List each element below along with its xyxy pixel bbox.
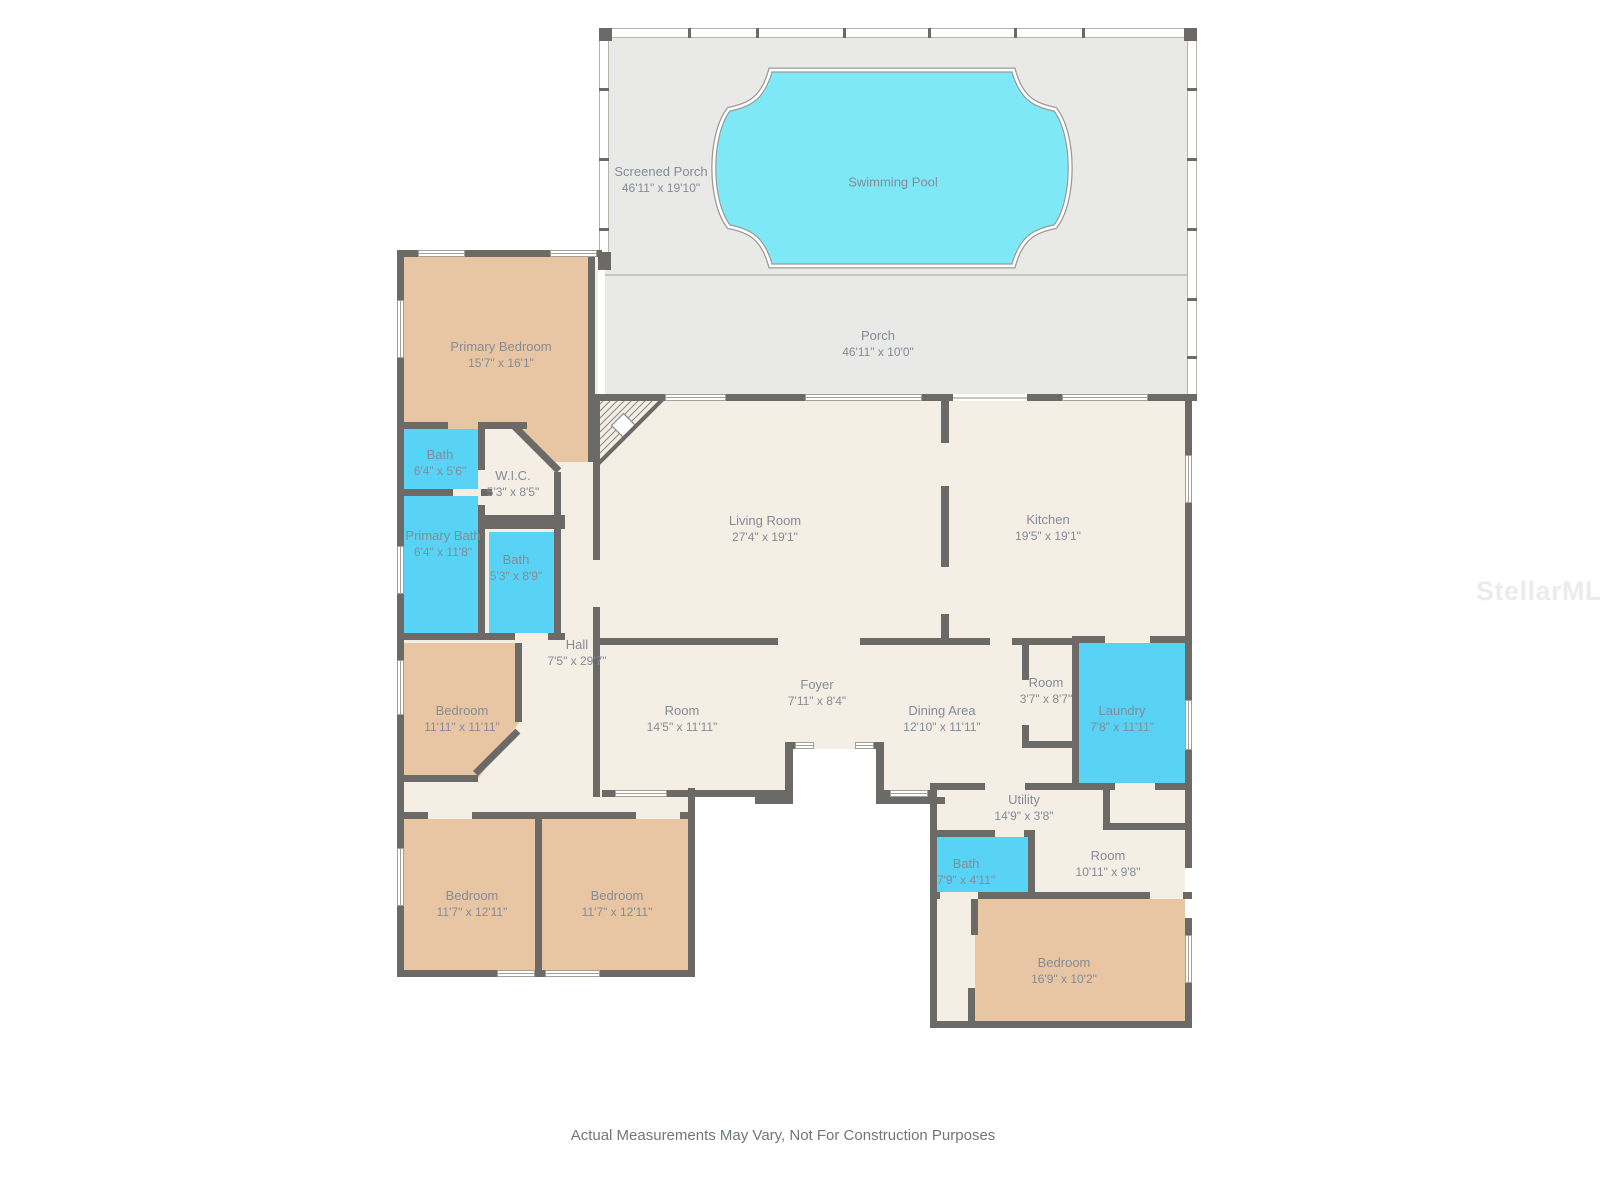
- rail-post: [599, 88, 609, 91]
- room-label-room-2: Room3'7" x 8'7": [1020, 675, 1072, 707]
- wall-segment: [1022, 741, 1079, 748]
- room-label-room-1: Room14'5" x 11'11": [647, 703, 718, 735]
- room-label-swimming-pool: Swimming Pool: [848, 175, 938, 192]
- room-label-bath-1: Bath6'4" x 5'6": [414, 447, 466, 479]
- rail-post: [1187, 88, 1197, 91]
- rail-post: [599, 28, 612, 41]
- wall-segment: [755, 797, 785, 804]
- window: [418, 250, 465, 257]
- screen-rail-left: [599, 28, 609, 268]
- room-label-laundry: Laundry7'8" x 11'11": [1090, 703, 1154, 735]
- wall-segment: [1025, 783, 1115, 790]
- room-label-bedroom-bottom-right: Bedroom11'7" x 12'11": [582, 888, 653, 920]
- rail-post: [599, 228, 609, 231]
- room-label-kitchen: Kitchen19'5" x 19'1": [1015, 512, 1081, 544]
- room-label-utility: Utility14'9" x 3'8": [994, 792, 1053, 824]
- rail-post: [756, 28, 759, 38]
- wall-segment: [1150, 636, 1190, 643]
- window: [545, 970, 600, 977]
- rail-post: [1014, 28, 1017, 38]
- room-label-primary-bath: Primary Bath6'4" x 11'8": [405, 528, 480, 560]
- room-label-screened-porch: Screened Porch46'11" x 19'10": [614, 164, 707, 196]
- wall-segment: [1072, 636, 1105, 643]
- wall-segment: [1185, 503, 1192, 700]
- wall-segment: [680, 812, 692, 819]
- room-label-hall: Hall7'5" x 29'7": [547, 637, 606, 669]
- wall-segment: [1027, 394, 1062, 401]
- window: [397, 660, 404, 715]
- rail-post: [688, 28, 691, 38]
- wall-segment: [472, 812, 636, 819]
- wall-segment: [1028, 830, 1035, 899]
- window: [550, 250, 597, 257]
- wall-segment: [595, 638, 778, 645]
- wall-segment: [1012, 638, 1072, 645]
- wall-segment: [941, 486, 949, 567]
- wall-segment: [397, 633, 515, 640]
- wall-segment: [1155, 783, 1190, 790]
- wall-segment: [554, 472, 561, 640]
- wall-segment: [397, 775, 478, 782]
- disclaimer-text: Actual Measurements May Vary, Not For Co…: [0, 1127, 1566, 1144]
- rail-post: [1184, 28, 1197, 41]
- rail-post: [1187, 356, 1197, 359]
- room-label-porch: Porch46'11" x 10'0": [842, 328, 914, 360]
- wall-segment: [930, 783, 937, 1028]
- wall-segment: [397, 489, 453, 496]
- wall-segment: [937, 830, 995, 837]
- wall-segment: [1185, 394, 1192, 455]
- wall-segment: [397, 812, 428, 819]
- window: [497, 970, 535, 977]
- wall-segment: [860, 638, 990, 645]
- rail-post: [928, 28, 931, 38]
- window: [855, 742, 874, 749]
- window: [665, 394, 726, 401]
- wall-segment: [978, 892, 1150, 899]
- window: [397, 300, 404, 358]
- window: [1185, 935, 1192, 983]
- wall-segment: [785, 742, 793, 804]
- room-label-living-room: Living Room27'4" x 19'1": [729, 513, 801, 545]
- window: [397, 848, 404, 906]
- room-label-bath-2: Bath5'3" x 8'9": [490, 552, 542, 584]
- floor-plan-canvas: Screened Porch46'11" x 19'10" Swimming P…: [0, 0, 1600, 1200]
- wall-segment: [941, 401, 949, 443]
- primary-bath-floor: [404, 496, 478, 633]
- wall-segment: [478, 505, 485, 637]
- wall-segment: [1103, 790, 1110, 830]
- rail-post: [1082, 28, 1085, 38]
- screen-rail-right: [1187, 28, 1197, 394]
- rail-post: [843, 28, 846, 38]
- rail-post: [1187, 298, 1197, 301]
- wall-segment: [1072, 643, 1079, 790]
- room-label-bedroom-middle: Bedroom11'11" x 11'11": [424, 703, 500, 735]
- wall-segment: [485, 515, 565, 529]
- window: [397, 546, 404, 594]
- room-label-primary-bedroom: Primary Bedroom15'7" x 16'1": [450, 339, 551, 371]
- room-label-bedroom-se: Bedroom16'9" x 10'2": [1031, 955, 1097, 987]
- window: [1185, 455, 1192, 503]
- rail-post: [599, 158, 609, 161]
- wall-segment: [478, 422, 485, 470]
- window: [615, 790, 667, 797]
- wall-segment: [953, 397, 1027, 399]
- wall-segment: [595, 394, 665, 401]
- wall-segment: [1185, 750, 1192, 868]
- wall-segment: [971, 899, 978, 935]
- wall-segment: [667, 790, 785, 797]
- wall-segment: [930, 892, 940, 899]
- wall-segment: [876, 742, 884, 804]
- window: [890, 790, 928, 797]
- wall-segment: [726, 394, 805, 401]
- stellar-mls-watermark: StellarMLS: [1476, 576, 1600, 607]
- room-label-dining-area: Dining Area12'10" x 11'11": [903, 703, 980, 735]
- room-label-bath-3: Bath7'9" x 4'11": [937, 856, 995, 888]
- wall-segment: [1185, 918, 1192, 935]
- wall-segment: [922, 394, 953, 401]
- wall-segment: [785, 742, 795, 749]
- wall-segment: [397, 422, 448, 429]
- window: [805, 394, 922, 401]
- room-label-room-3: Room10'11" x 9'8": [1076, 848, 1141, 880]
- corner-fireplace: [597, 399, 667, 469]
- entry-alcove: [793, 749, 876, 804]
- wall-segment: [602, 790, 615, 797]
- room-label-foyer: Foyer7'11" x 8'4": [788, 677, 846, 709]
- room-label-bedroom-bottom-left: Bedroom11'7" x 12'11": [437, 888, 508, 920]
- wall-segment: [593, 394, 600, 560]
- window: [1185, 700, 1192, 750]
- swimming-pool-shape: [702, 60, 1082, 276]
- wall-segment: [535, 819, 542, 973]
- rail-post: [1187, 228, 1197, 231]
- wall-segment: [1110, 823, 1190, 830]
- wall-segment: [930, 783, 985, 790]
- wall-segment: [968, 988, 975, 1028]
- wall-segment: [884, 797, 945, 804]
- wall-segment: [515, 643, 522, 722]
- rail-post: [1187, 158, 1197, 161]
- room-label-wic: W.I.C.5'3" x 8'5": [487, 468, 539, 500]
- wall-segment: [593, 607, 600, 797]
- wall-segment: [1183, 892, 1192, 899]
- window: [1062, 394, 1148, 401]
- wall-segment: [874, 742, 884, 749]
- window: [795, 742, 814, 749]
